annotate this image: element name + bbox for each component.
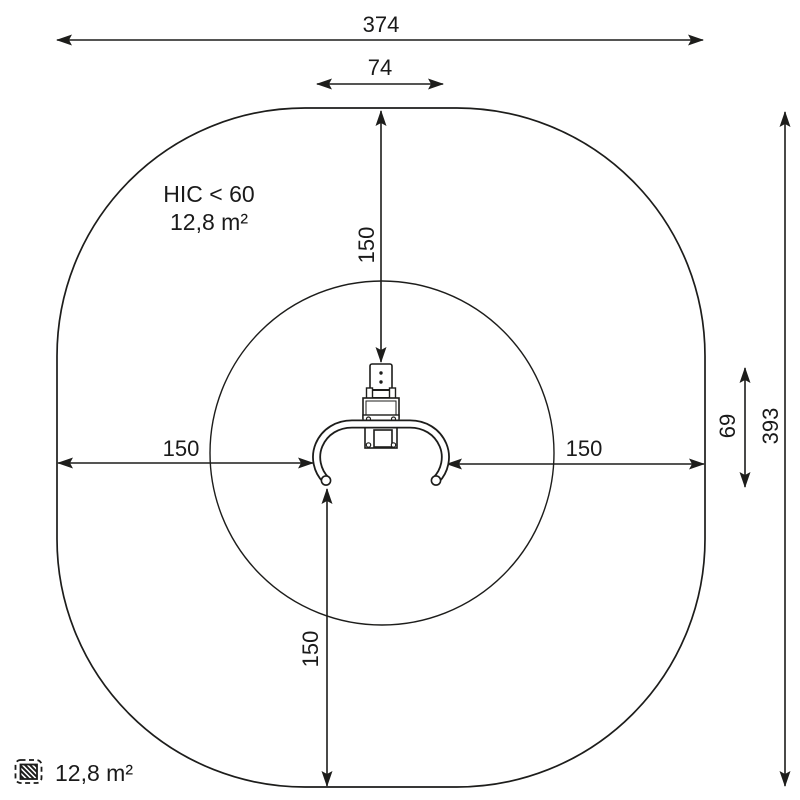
dim-equipment-width-label: 74 (368, 55, 392, 80)
legend: 12,8 m² (16, 760, 134, 786)
dim-equipment-width: 74 (317, 55, 443, 84)
dim-clearance-top-label: 150 (354, 227, 379, 264)
dim-clearance-right: 150 (447, 436, 704, 464)
dim-clearance-bottom: 150 (298, 489, 327, 786)
dim-clearance-left: 150 (58, 436, 313, 463)
diagram-svg: HIC < 60 12,8 m² 374 74 393 69 150 150 1… (0, 0, 800, 800)
dim-clearance-left-label: 150 (163, 436, 200, 461)
dim-clearance-top: 150 (354, 111, 381, 362)
dim-clearance-right-label: 150 (566, 436, 603, 461)
dim-total-height: 393 (758, 112, 785, 786)
dim-total-width-label: 374 (363, 12, 400, 37)
dim-equipment-extent-label: 69 (715, 414, 740, 438)
equipment-top-view (317, 364, 446, 485)
dim-total-height-label: 393 (758, 408, 783, 445)
legend-hatch-icon (21, 765, 38, 780)
equipment-headrest-dot (379, 371, 382, 374)
equipment-handlebar-end-left (321, 476, 330, 485)
dim-total-width: 374 (57, 12, 703, 40)
safety-zone-diagram: HIC < 60 12,8 m² 374 74 393 69 150 150 1… (0, 0, 800, 800)
equipment-headrest (370, 364, 392, 390)
dim-clearance-bottom-label: 150 (298, 631, 323, 668)
dim-equipment-extent: 69 (715, 368, 745, 487)
equipment-bolt (391, 443, 395, 447)
equipment-handlebar-end-right (431, 476, 440, 485)
impact-area-label: 12,8 m² (170, 209, 248, 235)
equipment-bolt (366, 443, 370, 447)
legend-impact-area-label: 12,8 m² (55, 760, 133, 786)
equipment-headrest-dot (379, 380, 382, 383)
hic-label: HIC < 60 (163, 181, 254, 207)
impact-area-circle (210, 281, 554, 625)
